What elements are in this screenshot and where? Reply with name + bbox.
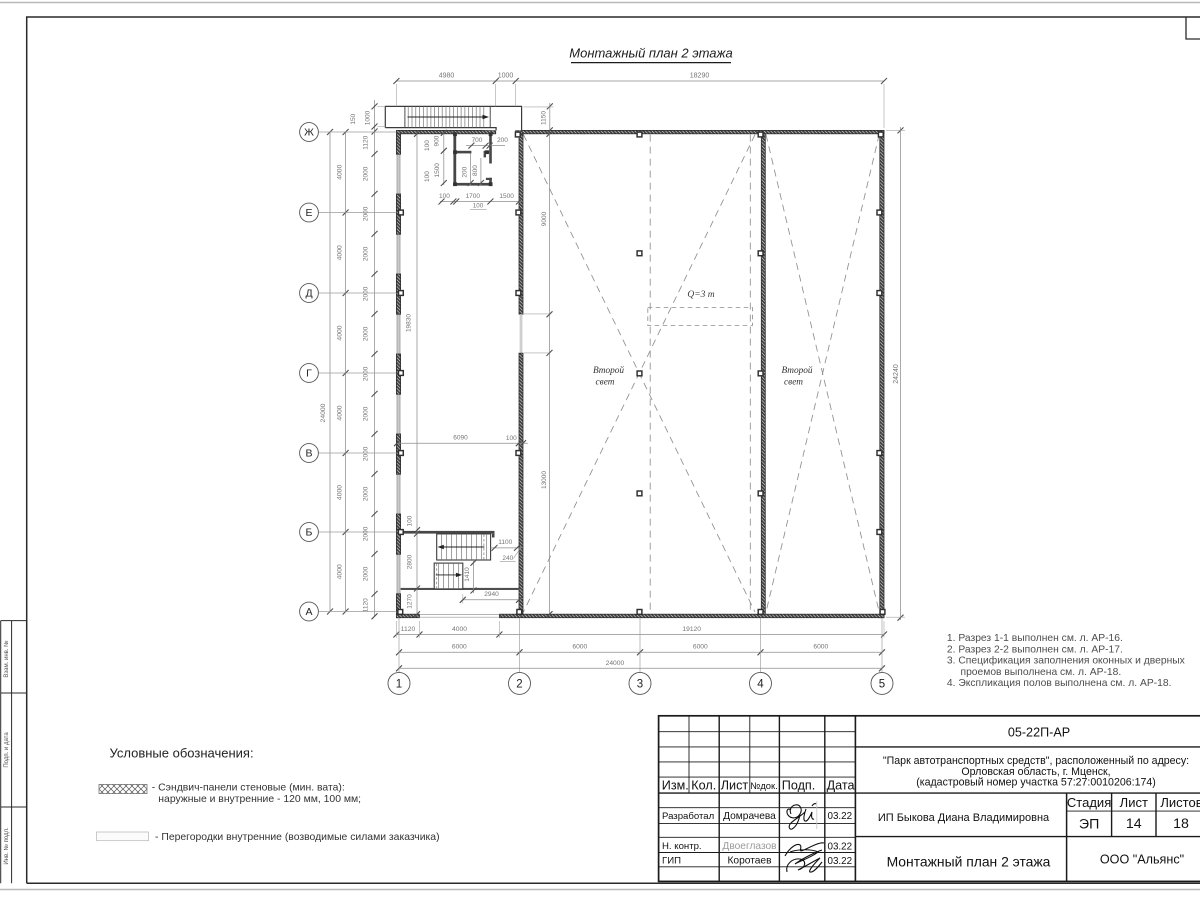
- svg-text:Ж: Ж: [304, 127, 314, 139]
- svg-text:03.22: 03.22: [828, 811, 853, 822]
- svg-text:Е: Е: [305, 207, 312, 219]
- svg-text:ООО "Альянс": ООО "Альянс": [1100, 852, 1184, 866]
- svg-text:3. Спецификация заполнения око: 3. Спецификация заполнения оконных и две…: [947, 655, 1186, 667]
- svg-text:4980: 4980: [439, 73, 455, 80]
- svg-text:1500: 1500: [499, 193, 514, 200]
- svg-text:2940: 2940: [484, 591, 499, 598]
- svg-text:свет: свет: [596, 378, 615, 388]
- svg-text:Условные обозначения:: Условные обозначения:: [110, 746, 254, 761]
- svg-text:24240: 24240: [893, 364, 900, 384]
- svg-text:2000: 2000: [363, 286, 370, 301]
- svg-text:2000: 2000: [363, 166, 370, 181]
- svg-text:2000: 2000: [363, 246, 370, 261]
- svg-text:03.22: 03.22: [828, 856, 853, 867]
- svg-text:1500: 1500: [434, 163, 441, 178]
- svg-text:24000: 24000: [320, 403, 327, 422]
- svg-text:ЭП: ЭП: [1079, 817, 1099, 833]
- svg-text:2000: 2000: [363, 206, 370, 221]
- svg-text:В: В: [305, 448, 312, 460]
- svg-text:2: 2: [516, 679, 522, 691]
- svg-text:1100: 1100: [498, 539, 512, 546]
- svg-text:А: А: [305, 606, 312, 618]
- svg-text:4: 4: [757, 679, 764, 691]
- svg-text:800: 800: [472, 165, 479, 176]
- svg-text:100: 100: [473, 203, 484, 210]
- svg-text:2000: 2000: [363, 446, 370, 461]
- svg-text:6090: 6090: [453, 435, 468, 442]
- svg-text:Лист: Лист: [721, 778, 749, 792]
- svg-text:1: 1: [396, 679, 402, 691]
- svg-text:9000: 9000: [541, 211, 548, 226]
- svg-text:2000: 2000: [363, 526, 370, 541]
- svg-text:Изм.: Изм.: [662, 778, 689, 792]
- svg-text:2000: 2000: [363, 566, 370, 581]
- svg-text:Б: Б: [306, 527, 313, 539]
- svg-text:18: 18: [1173, 816, 1189, 832]
- svg-text:1000: 1000: [498, 73, 514, 80]
- svg-text:Д: Д: [305, 288, 312, 300]
- svg-text:1410: 1410: [464, 567, 471, 582]
- svg-text:Подп. и дата: Подп. и дата: [4, 732, 10, 768]
- svg-text:24000: 24000: [606, 660, 625, 667]
- svg-text:200: 200: [497, 137, 508, 144]
- svg-text:1000: 1000: [365, 110, 372, 125]
- svg-text:700: 700: [472, 137, 483, 144]
- svg-text:Двоеглазов: Двоеглазов: [722, 841, 776, 852]
- svg-text:100: 100: [424, 171, 431, 182]
- svg-text:Н. контр.: Н. контр.: [662, 841, 702, 852]
- svg-text:100: 100: [424, 140, 431, 151]
- svg-text:4000: 4000: [337, 485, 344, 500]
- svg-text:2000: 2000: [363, 486, 370, 501]
- svg-text:№док.: №док.: [750, 780, 777, 791]
- svg-text:03.22: 03.22: [828, 841, 853, 852]
- svg-text:наружные и внутренние - 120 мм: наружные и внутренние - 120 мм, 100 мм;: [158, 794, 361, 805]
- svg-text:2. Разрез 2-2 выполнен см. л.: 2. Разрез 2-2 выполнен см. л. АР-17.: [947, 644, 1123, 655]
- svg-text:- Сэндвич-панели стеновые (мин: - Сэндвич-панели стеновые (мин. вата):: [152, 783, 345, 794]
- svg-text:4000: 4000: [337, 405, 344, 420]
- svg-text:1. Разрез 1-1 выполнен см. л.: 1. Разрез 1-1 выполнен см. л. АР-16.: [947, 633, 1123, 644]
- svg-text:19830: 19830: [406, 314, 413, 332]
- svg-text:Монтажный план 2 этажа: Монтажный план 2 этажа: [887, 853, 1051, 869]
- svg-text:ГИП: ГИП: [662, 855, 681, 866]
- svg-text:6000: 6000: [813, 644, 828, 651]
- svg-text:проемов выполнена см. л. АР-18: проемов выполнена см. л. АР-18.: [961, 667, 1122, 678]
- svg-text:Лист: Лист: [1120, 795, 1148, 810]
- svg-text:2000: 2000: [363, 326, 370, 341]
- svg-text:1270: 1270: [407, 594, 414, 609]
- svg-text:Стадия: Стадия: [1067, 795, 1111, 810]
- svg-text:Кол.: Кол.: [691, 778, 716, 792]
- svg-text:Второй: Второй: [781, 365, 812, 376]
- svg-text:5: 5: [879, 679, 885, 691]
- svg-text:1120: 1120: [363, 135, 370, 149]
- svg-text:Г: Г: [306, 368, 312, 380]
- svg-text:Второй: Второй: [593, 365, 624, 376]
- svg-text:13000: 13000: [541, 471, 548, 489]
- svg-text:200: 200: [461, 166, 468, 177]
- svg-text:05-22П-АР: 05-22П-АР: [1008, 726, 1070, 740]
- svg-text:свет: свет: [784, 378, 803, 388]
- svg-text:1700: 1700: [466, 193, 481, 200]
- svg-text:4000: 4000: [337, 164, 344, 179]
- svg-text:2800: 2800: [407, 554, 414, 569]
- svg-text:4000: 4000: [337, 564, 344, 579]
- svg-text:1120: 1120: [363, 598, 370, 612]
- svg-text:4. Экспликация полов выполнена: 4. Экспликация полов выполнена см. л. АР…: [947, 678, 1172, 689]
- svg-text:100: 100: [506, 435, 517, 442]
- svg-text:1120: 1120: [401, 626, 416, 633]
- svg-text:18290: 18290: [690, 73, 710, 80]
- svg-text:4000: 4000: [337, 245, 344, 260]
- svg-text:ИП Быкова Диана Владимировна: ИП Быкова Диана Владимировна: [878, 812, 1050, 824]
- svg-text:1150: 1150: [541, 111, 548, 125]
- svg-text:Разработал: Разработал: [662, 811, 714, 822]
- svg-text:Дата: Дата: [827, 778, 855, 792]
- svg-text:6000: 6000: [693, 644, 708, 651]
- svg-text:4000: 4000: [452, 626, 467, 633]
- svg-text:900: 900: [434, 135, 441, 146]
- svg-text:Взам. инв. №: Взам. инв. №: [3, 640, 10, 677]
- svg-text:Домрачева: Домрачева: [723, 811, 776, 822]
- svg-text:- Перегородки внутренние (возв: - Перегородки внутренние (возводимые сил…: [155, 832, 440, 843]
- svg-text:100: 100: [407, 515, 414, 526]
- svg-text:6000: 6000: [452, 644, 467, 651]
- svg-text:Подп.: Подп.: [782, 778, 815, 792]
- svg-text:14: 14: [1126, 816, 1142, 832]
- svg-text:150: 150: [350, 113, 357, 124]
- svg-text:19120: 19120: [682, 626, 701, 633]
- svg-text:Q=3 т: Q=3 т: [687, 290, 714, 300]
- svg-text:2000: 2000: [363, 366, 370, 381]
- svg-text:4000: 4000: [337, 325, 344, 340]
- svg-text:Коротаев: Коротаев: [727, 855, 771, 866]
- svg-text:Листов: Листов: [1160, 795, 1200, 810]
- svg-text:Монтажный план 2 этажа: Монтажный план 2 этажа: [569, 46, 732, 61]
- svg-text:(кадастровый номер участка 57:: (кадастровый номер участка 57:27:0010206…: [916, 776, 1156, 788]
- svg-text:Инв. № подл.: Инв. № подл.: [3, 827, 10, 865]
- svg-text:2000: 2000: [363, 406, 370, 421]
- svg-text:6000: 6000: [572, 644, 587, 651]
- svg-text:3: 3: [637, 679, 643, 691]
- svg-text:100: 100: [439, 193, 450, 200]
